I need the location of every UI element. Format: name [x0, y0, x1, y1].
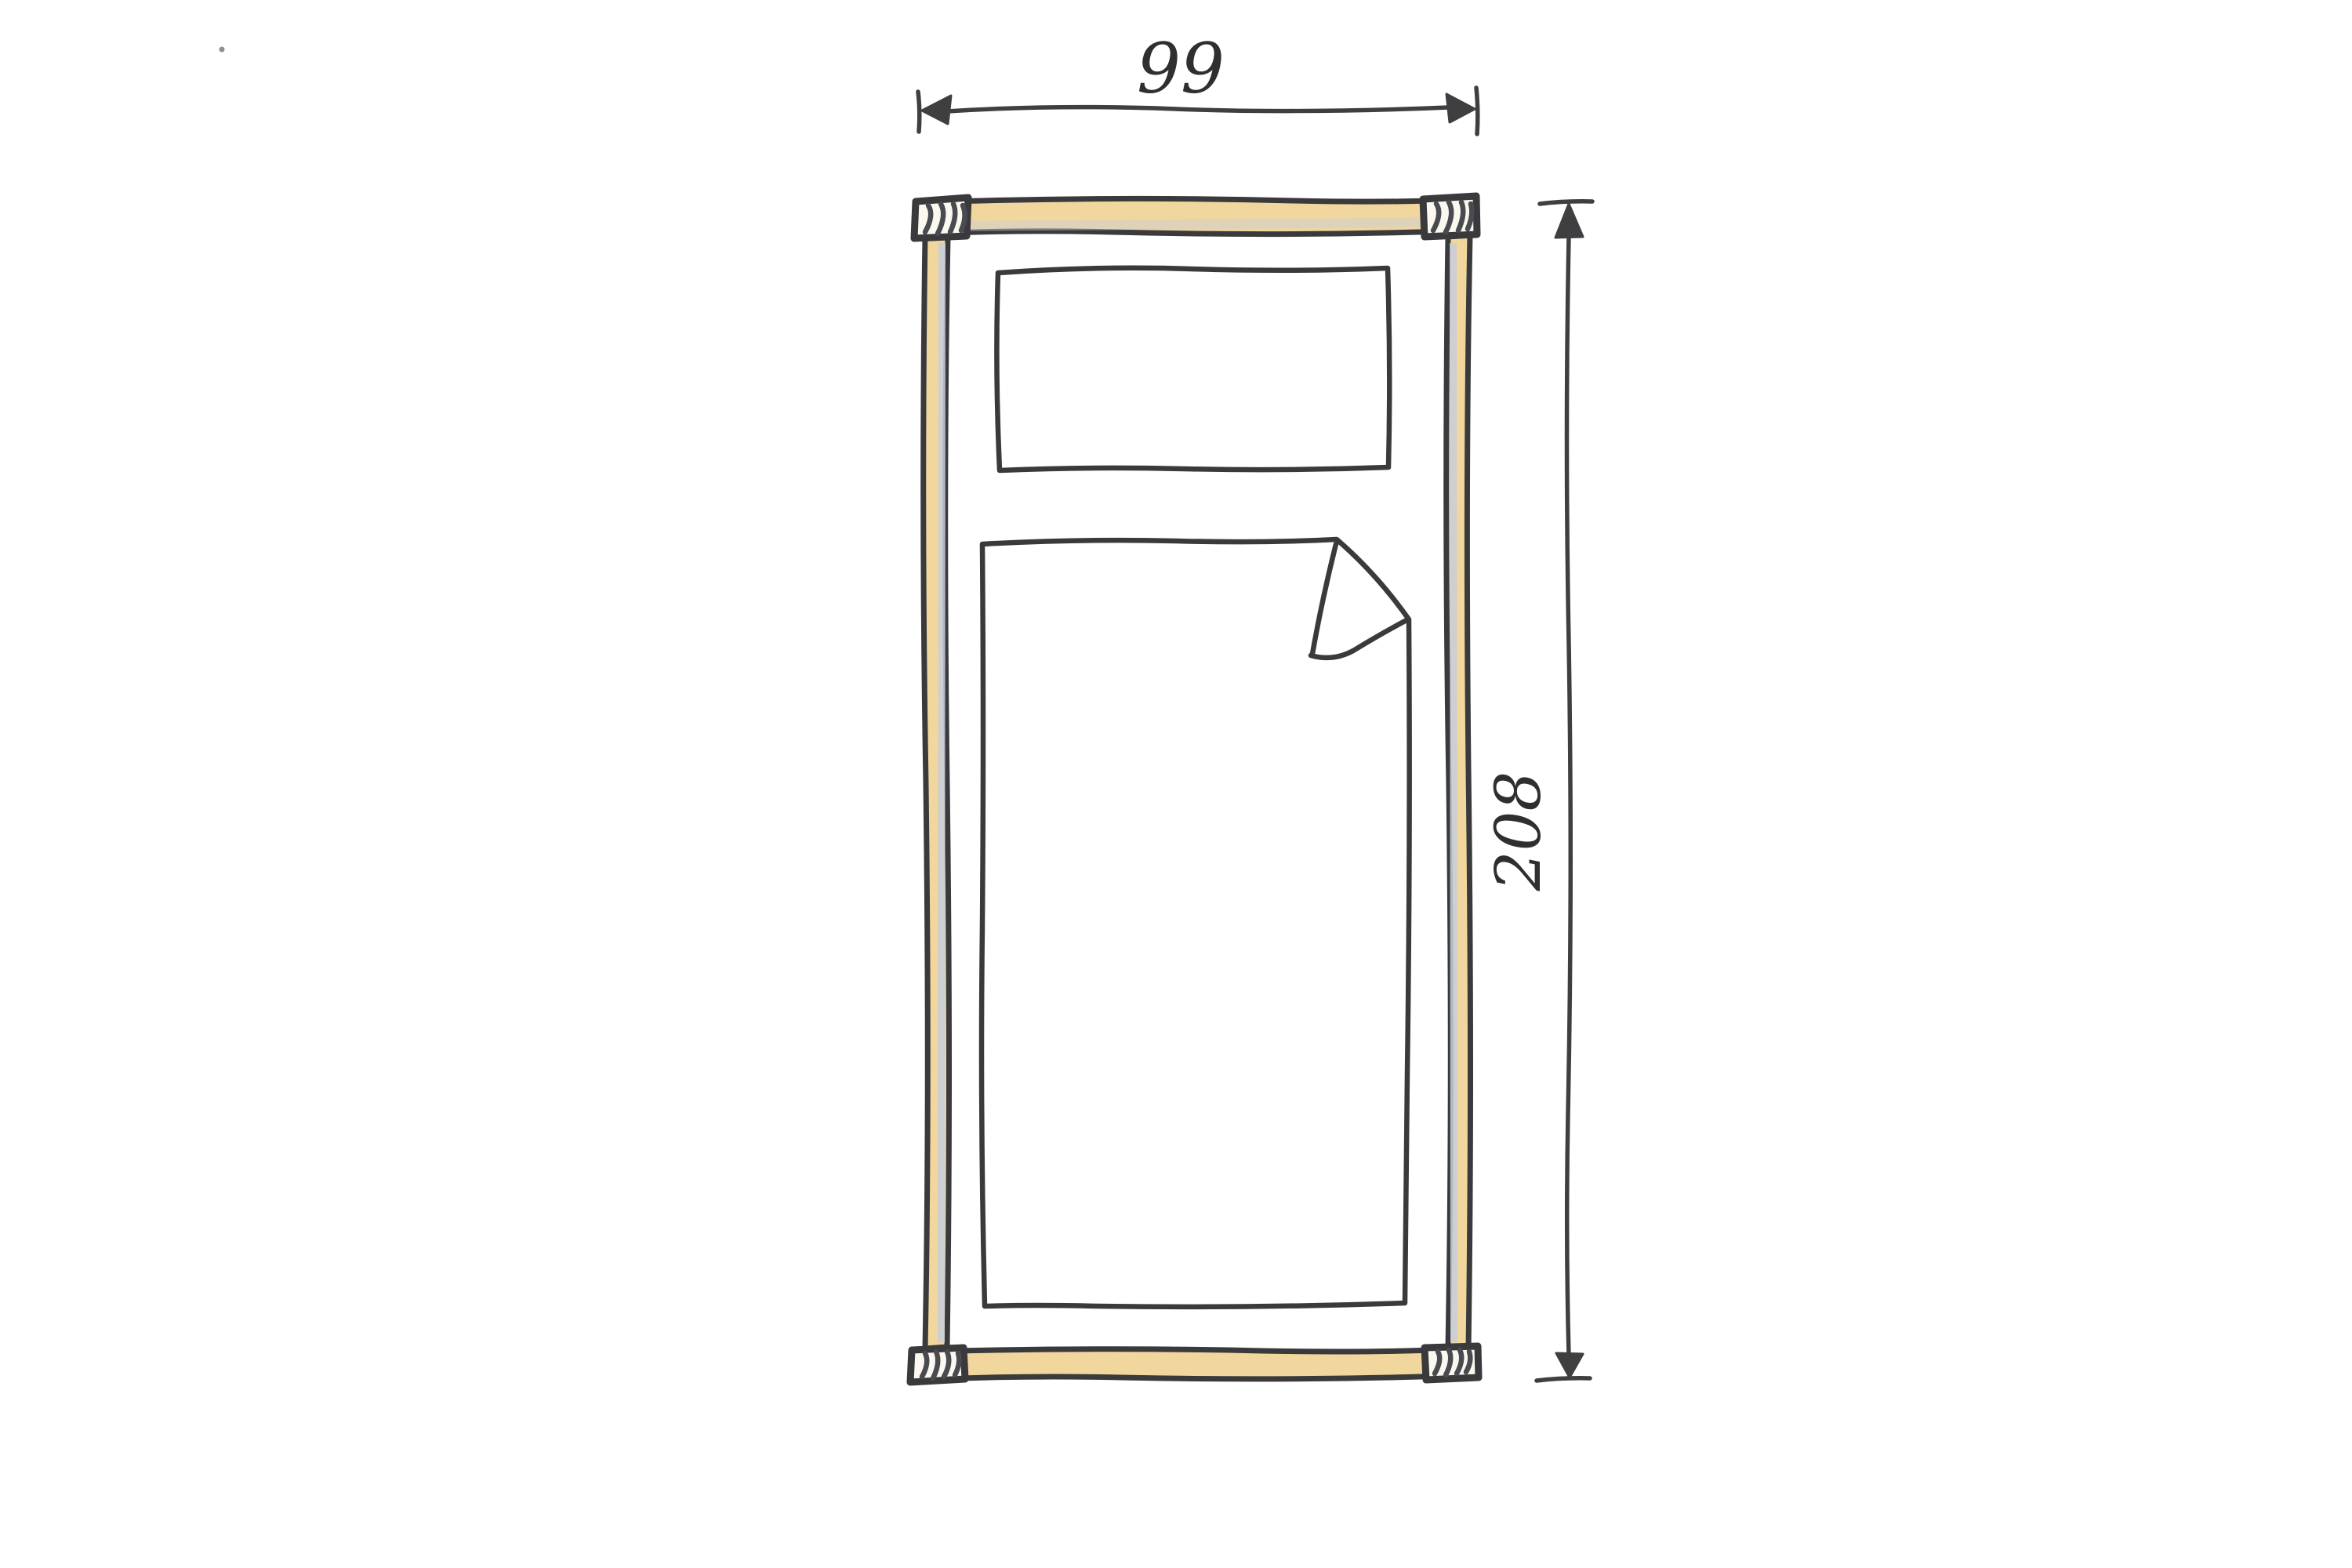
- corner-post-bottom-left: [910, 1348, 965, 1382]
- width-dimension-label: 99: [1137, 28, 1225, 109]
- sketch-page: 99 208: [0, 0, 2352, 1568]
- corner-post-top-right: [1423, 196, 1477, 237]
- extension-tick-right: [1476, 88, 1478, 134]
- corner-post-top-left: [914, 198, 968, 238]
- pillow-outline: [996, 268, 1389, 470]
- extension-tick-left: [918, 92, 920, 132]
- dimension-line-vertical: [1567, 237, 1571, 1355]
- bed-plan-sketch: 99 208: [0, 0, 2352, 1568]
- arrowhead-left-icon: [922, 96, 951, 124]
- arrowhead-down-icon: [1556, 1353, 1583, 1377]
- arrowhead-up-icon: [1555, 204, 1583, 238]
- corner-post-bottom-right: [1425, 1346, 1479, 1380]
- rail-shadow-stripe-left: [938, 243, 946, 1342]
- height-dimension-label: 208: [1482, 771, 1555, 892]
- frame-bottom-rail: [925, 1348, 1472, 1380]
- paper-speck: [220, 47, 225, 53]
- rail-shadow-stripe-right: [1450, 243, 1457, 1342]
- bedding: [982, 268, 1410, 1307]
- width-dimension: 99: [918, 28, 1478, 134]
- height-dimension: 208: [1482, 201, 1592, 1381]
- extension-tick-top: [1540, 201, 1592, 204]
- arrowhead-right-icon: [1446, 94, 1475, 122]
- extension-tick-bottom: [1537, 1378, 1590, 1381]
